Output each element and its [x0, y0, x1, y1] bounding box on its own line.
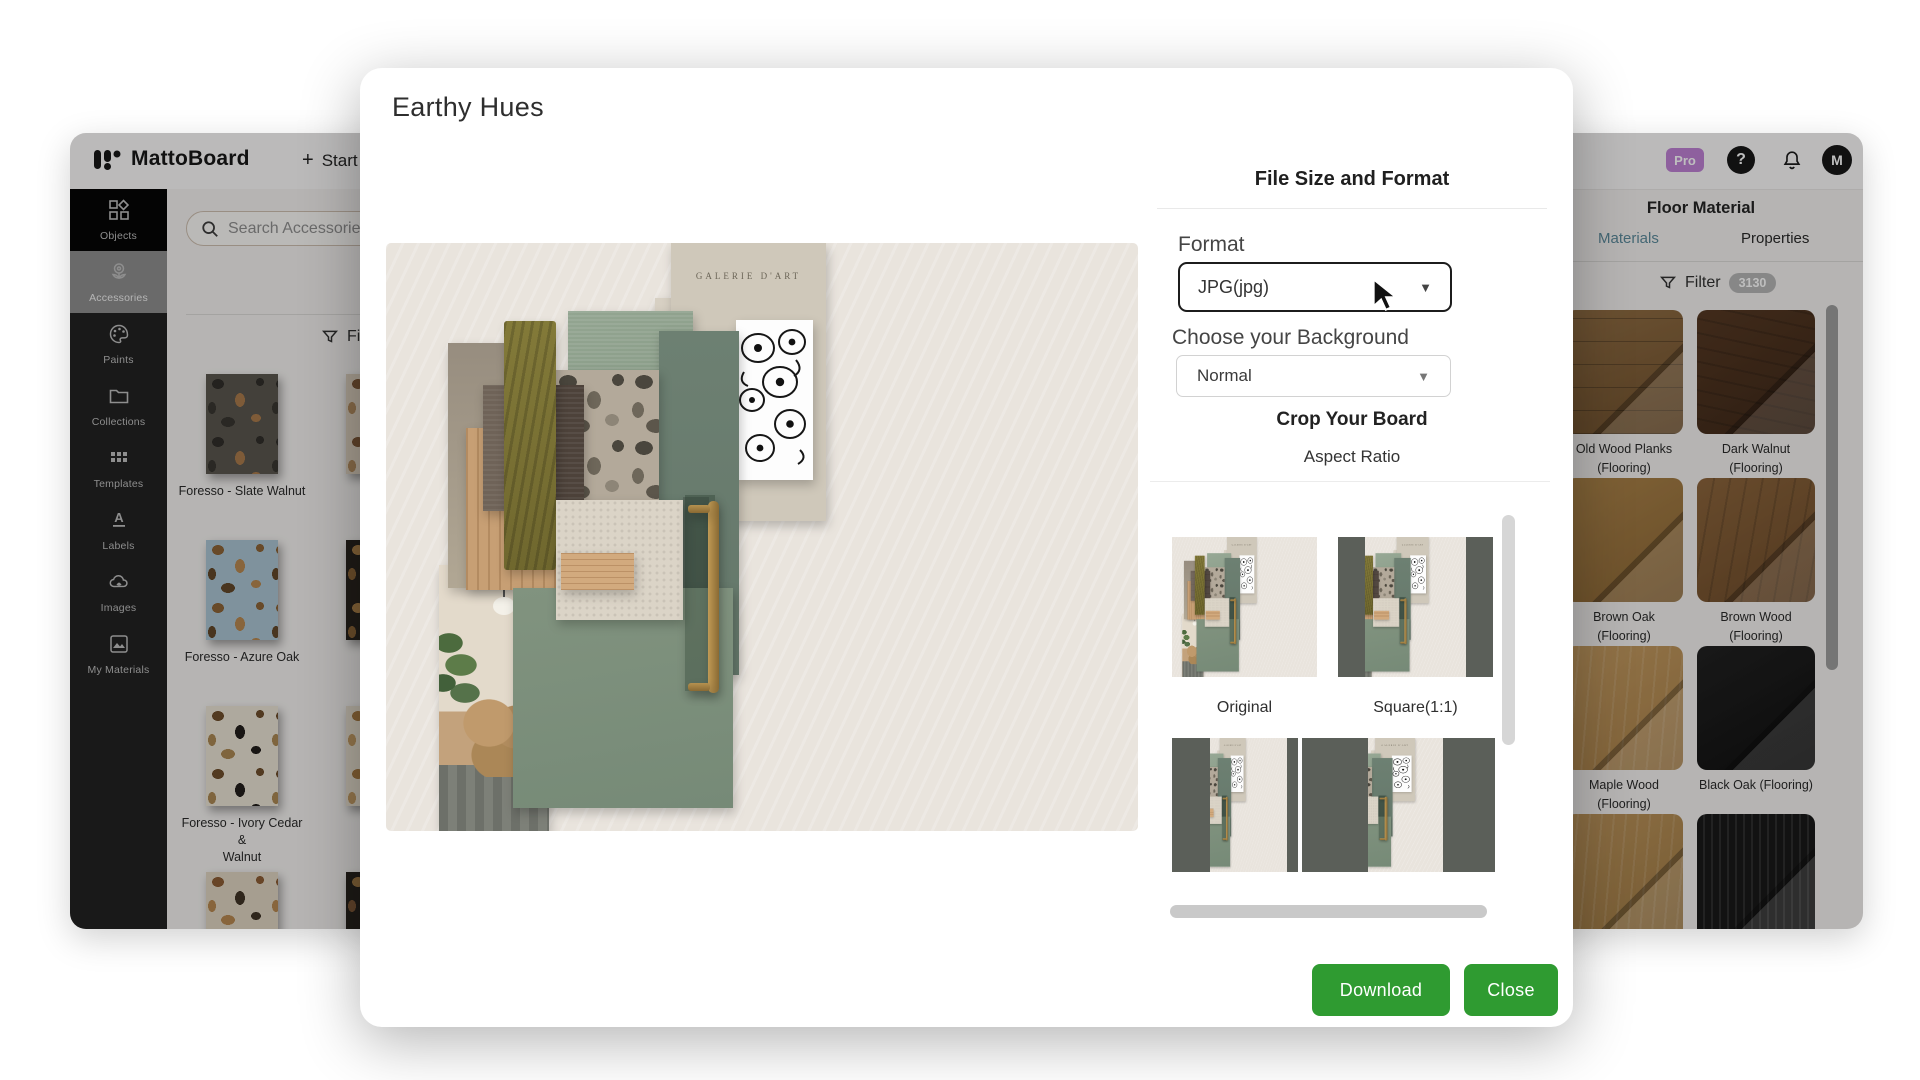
- material-swatch-image: [1565, 814, 1683, 929]
- brand-name: MattoBoard: [131, 147, 250, 171]
- sidebar-item-label: Objects: [100, 230, 137, 242]
- sidebar-item-label: Templates: [94, 478, 144, 490]
- poster-caption: GALERIE D'ART: [671, 271, 826, 281]
- board-brass-handle: [1234, 598, 1236, 644]
- thumbs-horizontal-scrollbar[interactable]: [1170, 905, 1487, 918]
- collections-icon: [108, 385, 130, 412]
- board-wood-sample: [561, 553, 634, 590]
- product-label: Foresso - Slate Walnut: [178, 483, 306, 500]
- aspect-option-label: Square(1:1): [1338, 699, 1493, 717]
- accessories-icon: [108, 261, 130, 288]
- board-title: Earthy Hues: [392, 92, 544, 123]
- crop-bar: [1338, 537, 1365, 677]
- material-swatch-image: [1565, 310, 1683, 434]
- board-brass-handle: [1385, 797, 1388, 841]
- search-icon: [201, 220, 219, 238]
- aspect-option-4[interactable]: GALERIE D'ART: [1302, 738, 1495, 872]
- materials-panel-title: Floor Material: [1563, 199, 1839, 218]
- poster-caption: GALERIE D'ART: [1220, 744, 1246, 746]
- divider: [1157, 208, 1547, 209]
- sidebar-item-label: My Materials: [88, 664, 150, 676]
- board-floral-print: [736, 320, 813, 480]
- product-tile[interactable]: [178, 862, 306, 929]
- my-materials-icon: [108, 633, 130, 660]
- chevron-down-icon: ▼: [1417, 369, 1430, 384]
- chevron-down-icon: ▼: [1419, 280, 1432, 295]
- templates-icon: [108, 447, 130, 474]
- material-label: Old Wood Planks(Flooring): [1565, 440, 1683, 478]
- material-swatch-image: [1697, 646, 1815, 770]
- sidebar-item-objects[interactable]: Objects: [70, 189, 167, 251]
- material-tile[interactable]: Brown Wood(Flooring): [1697, 478, 1815, 646]
- product-label: Foresso - Ivory Cedar &Walnut: [178, 815, 306, 866]
- materials-scrollbar[interactable]: [1826, 305, 1838, 670]
- brand: MattoBoard: [94, 147, 250, 171]
- crop-heading: Crop Your Board: [1157, 409, 1547, 431]
- crop-bar: [1466, 537, 1493, 677]
- product-tile[interactable]: Foresso - Azure Oak: [178, 530, 306, 696]
- divider: [1150, 481, 1550, 482]
- board-olive-velvet: [504, 321, 556, 570]
- material-tile[interactable]: Brown Oak (Flooring): [1565, 478, 1683, 646]
- moodboard-artwork: GALERIE D'ART: [1172, 537, 1317, 677]
- product-swatch-image: [206, 374, 278, 474]
- product-tile[interactable]: Foresso - Ivory Cedar &Walnut: [178, 696, 306, 862]
- divider: [1563, 261, 1863, 262]
- materials-panel: Floor Material Materials Properties Filt…: [1563, 133, 1863, 929]
- crop-bar: [1172, 738, 1210, 872]
- poster-caption: GALERIE D'ART: [1397, 544, 1429, 546]
- sidebar-item-label: Labels: [102, 540, 134, 552]
- material-label: Black Oak (Flooring): [1697, 776, 1815, 795]
- board-preview: GALERIE D'ART: [386, 243, 1138, 831]
- board-floral-print: [1410, 555, 1426, 593]
- crop-bar: [1287, 738, 1298, 872]
- svg-text:A: A: [114, 510, 124, 525]
- sidebar-item-label: Collections: [92, 416, 146, 428]
- board-olive-velvet: [1195, 556, 1205, 615]
- download-button[interactable]: Download: [1312, 964, 1450, 1016]
- material-label: Brown Wood(Flooring): [1697, 608, 1815, 646]
- funnel-icon: [321, 328, 339, 346]
- material-tile[interactable]: Old Wood Planks(Flooring): [1565, 310, 1683, 478]
- background-select[interactable]: Normal ▼: [1176, 355, 1451, 397]
- sidebar-item-paints[interactable]: Paints: [70, 313, 167, 375]
- background-label: Choose your Background: [1172, 326, 1409, 350]
- board-floral-print: [1231, 756, 1244, 792]
- product-tile[interactable]: Foresso - Slate Walnut: [178, 364, 306, 530]
- format-label: Format: [1178, 233, 1245, 257]
- material-label: Brown Oak (Flooring): [1565, 608, 1683, 646]
- materials-filter-button[interactable]: Filter 3130: [1659, 273, 1776, 293]
- thumbs-vertical-scrollbar[interactable]: [1502, 515, 1515, 745]
- format-select[interactable]: JPG(jpg) ▼: [1178, 262, 1452, 312]
- material-tile[interactable]: Dark Walnut(Flooring): [1697, 310, 1815, 478]
- sidebar-item-collections[interactable]: Collections: [70, 375, 167, 437]
- sidebar-item-labels[interactable]: ALabels: [70, 499, 167, 561]
- labels-icon: A: [108, 509, 130, 536]
- start-board-button[interactable]: + Start: [302, 149, 358, 172]
- mouse-cursor: [1372, 278, 1402, 312]
- aspect-option-original[interactable]: GALERIE D'ART: [1172, 537, 1317, 677]
- aspect-option-square[interactable]: GALERIE D'ART: [1338, 537, 1493, 677]
- board-wood-sample: [1374, 611, 1389, 620]
- sidebar-item-my-materials[interactable]: My Materials: [70, 623, 167, 685]
- board-brass-handle: [708, 501, 719, 693]
- paints-icon: [108, 323, 130, 350]
- product-swatch-image: [206, 540, 278, 640]
- sidebar-item-label: Paints: [103, 354, 133, 366]
- images-icon: [108, 571, 130, 598]
- funnel-icon: [1659, 274, 1677, 292]
- board-brass-handle: [1404, 598, 1406, 644]
- crop-bar: [1443, 738, 1495, 872]
- poster-caption: GALERIE D'ART: [1375, 744, 1415, 746]
- material-swatch-image: [1697, 814, 1815, 929]
- materials-grid: Old Wood Planks(Flooring)Dark Walnut(Flo…: [1565, 310, 1815, 929]
- product-swatch-image: [206, 872, 278, 929]
- material-swatch-image: [1565, 478, 1683, 602]
- board-brass-handle: [1226, 797, 1228, 841]
- moodboard-artwork: GALERIE D'ART: [386, 243, 1138, 831]
- aspect-option-label: Original: [1172, 699, 1317, 717]
- sidebar-item-accessories[interactable]: Accessories: [70, 251, 167, 313]
- tab-properties[interactable]: Properties: [1741, 230, 1809, 247]
- material-swatch-image: [1697, 310, 1815, 434]
- board-floral-print: [1239, 555, 1254, 593]
- tab-materials[interactable]: Materials: [1598, 230, 1659, 247]
- product-swatch-image: [206, 706, 278, 806]
- photo-lamp: [493, 597, 515, 615]
- board-floral-print: [1392, 756, 1412, 792]
- filter-count-badge: 3130: [1729, 273, 1777, 293]
- search-placeholder: Search Accessories: [228, 220, 369, 238]
- material-swatch-image: [1697, 478, 1815, 602]
- product-label: Foresso - Azure Oak: [178, 649, 306, 666]
- objects-icon: [108, 199, 130, 226]
- material-label: Dark Walnut(Flooring): [1697, 440, 1815, 478]
- material-swatch-image: [1565, 646, 1683, 770]
- crop-bar: [1302, 738, 1368, 872]
- sidebar-item-label: Accessories: [89, 292, 148, 304]
- aspect-ratio-heading: Aspect Ratio: [1157, 447, 1547, 467]
- sidebar-item-images[interactable]: Images: [70, 561, 167, 623]
- material-label: Maple Wood(Flooring): [1565, 776, 1683, 814]
- export-dialog: Earthy Hues GALERIE D'ART: [360, 68, 1573, 1027]
- material-tile[interactable]: Maple Wood(Flooring): [1565, 646, 1683, 814]
- plus-icon: +: [302, 149, 314, 172]
- poster-caption: GALERIE D'ART: [1227, 544, 1257, 546]
- board-wood-sample: [1206, 611, 1220, 620]
- sidebar-item-templates[interactable]: Templates: [70, 437, 167, 499]
- sidebar: ObjectsAccessoriesPaintsCollectionsTempl…: [70, 189, 167, 929]
- material-tile[interactable]: [1697, 814, 1815, 929]
- sidebar-item-label: Images: [101, 602, 137, 614]
- section-heading: File Size and Format: [1157, 168, 1547, 191]
- material-tile[interactable]: Black Oak (Flooring): [1697, 646, 1815, 814]
- aspect-option-3[interactable]: GALERIE D'ART: [1172, 738, 1298, 872]
- mattoboard-logo-icon: [94, 148, 121, 171]
- material-tile[interactable]: [1565, 814, 1683, 929]
- close-button[interactable]: Close: [1464, 964, 1558, 1016]
